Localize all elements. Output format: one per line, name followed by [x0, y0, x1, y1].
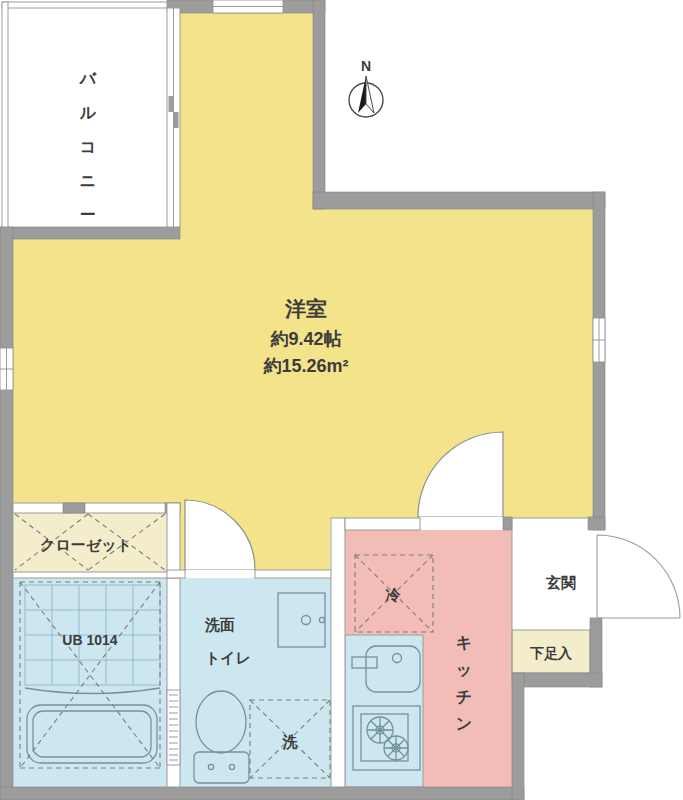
kitchen-counter	[345, 635, 423, 787]
floor-plan: N バルコニー 洋室 約9.42帖 約15.26m² クローゼット UB 101…	[0, 0, 683, 800]
closet-label: クローゼット	[40, 536, 132, 553]
left-wall-window	[0, 348, 13, 390]
fridge-label: 冷	[386, 586, 402, 603]
washer-label: 洗	[282, 733, 298, 750]
entrance-label: 玄関	[545, 574, 576, 591]
compass-north-label: N	[361, 58, 371, 74]
room-washroom	[180, 573, 337, 787]
washroom-label-line1: 洗面	[204, 616, 235, 633]
kitchen-doorway	[420, 517, 503, 530]
balcony-sliding-window	[167, 8, 180, 227]
unit-bath-label: UB 1014	[62, 632, 117, 648]
main-room-size-jo: 約9.42帖	[269, 329, 341, 349]
top-wall-window	[213, 0, 283, 13]
shoe-box-label: 下足入	[529, 645, 573, 662]
unit-bath-door	[167, 690, 180, 765]
right-wall-window	[593, 318, 605, 362]
main-room-name: 洋室	[284, 297, 327, 320]
washroom-label-line2: トイレ	[205, 649, 251, 666]
main-room-size-m2: 約15.26m²	[262, 356, 348, 376]
washroom-doorway	[185, 570, 255, 578]
